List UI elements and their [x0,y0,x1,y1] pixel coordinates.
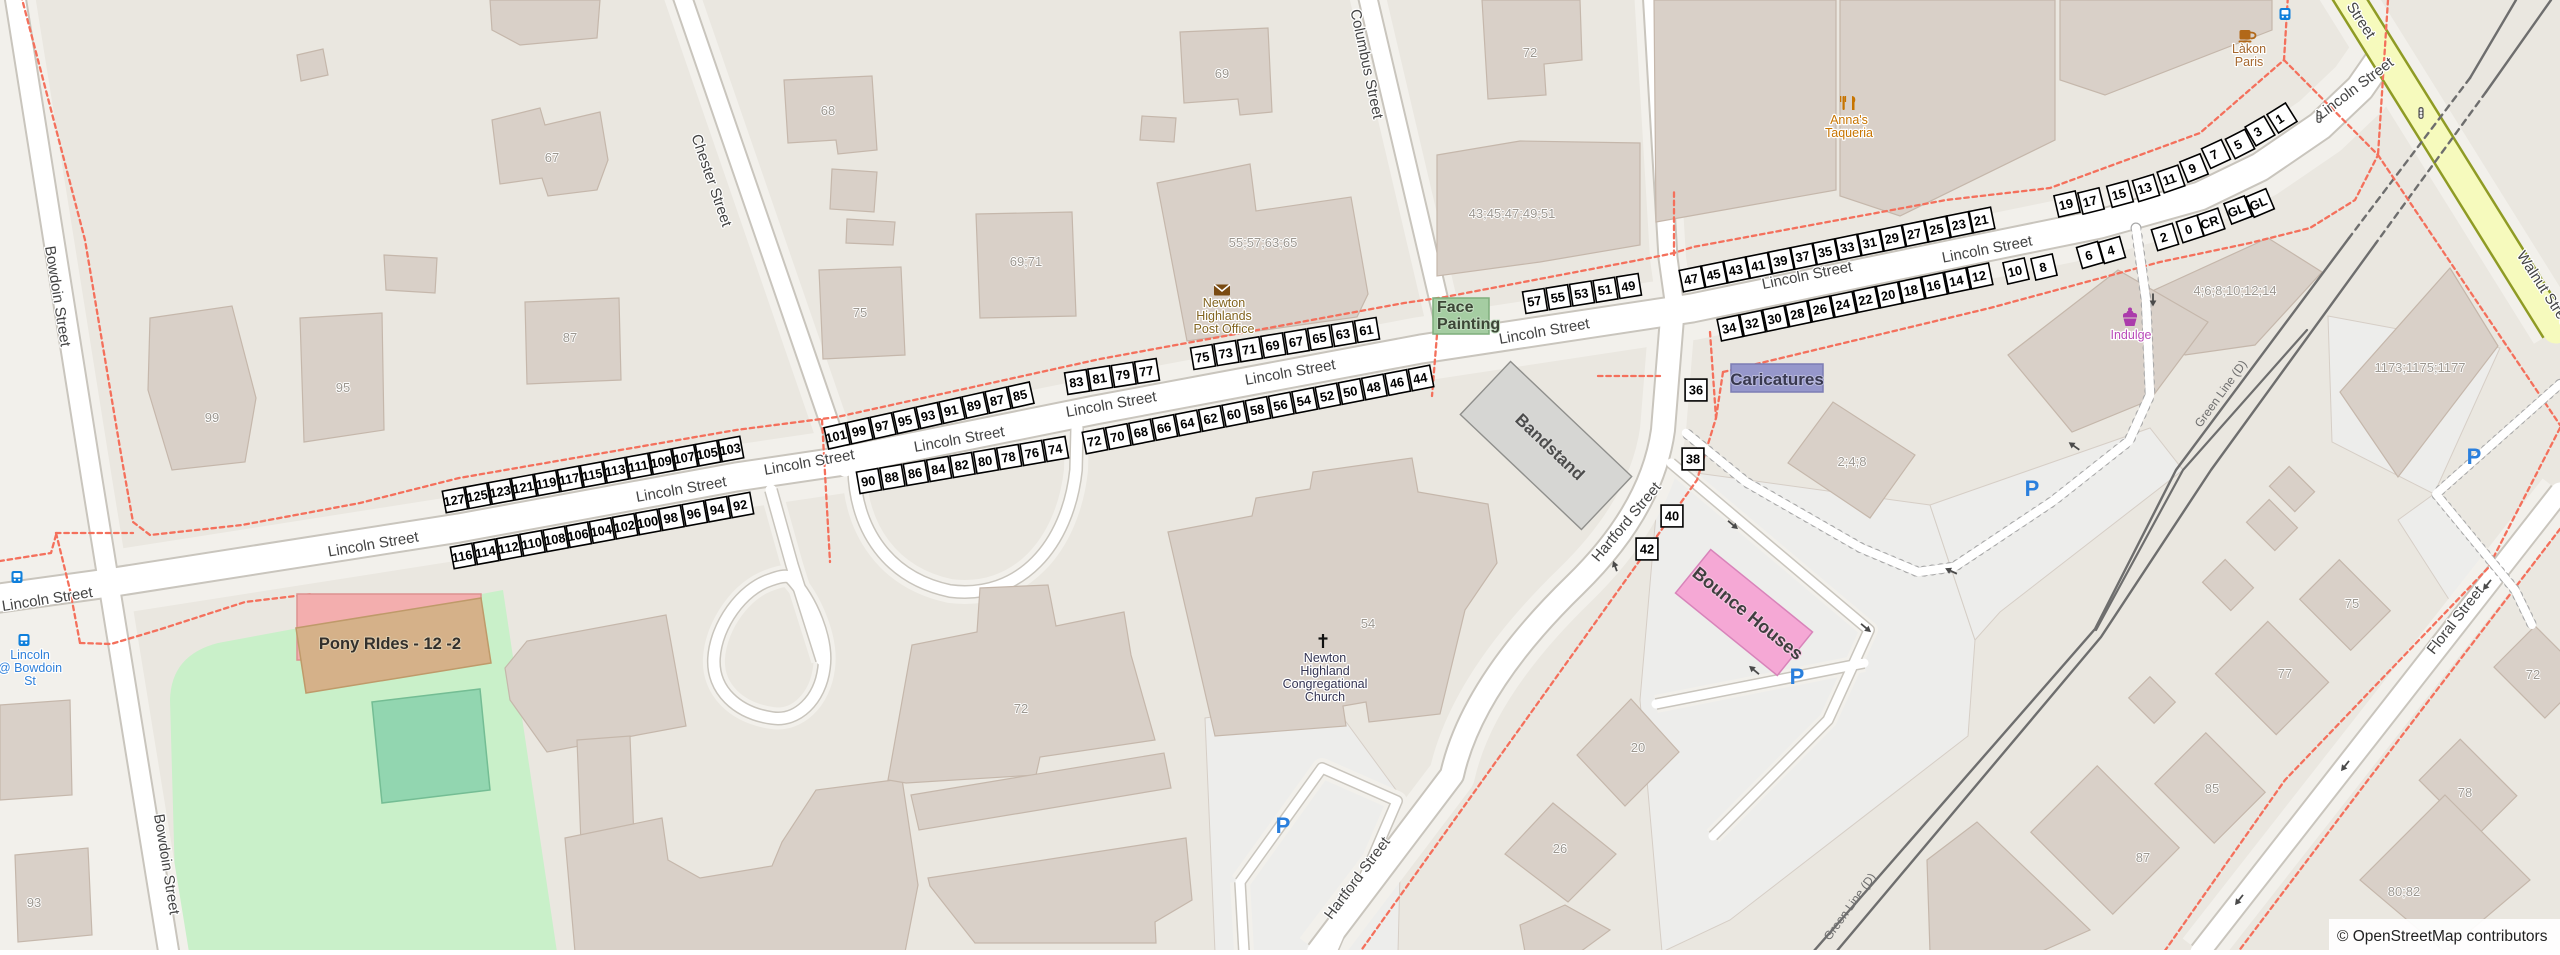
svg-text:80: 80 [977,453,994,470]
svg-text:85: 85 [2205,781,2219,796]
svg-text:Paris: Paris [2235,55,2263,69]
svg-text:2;4;8: 2;4;8 [1838,454,1867,469]
svg-text:@ Bowdoin: @ Bowdoin [0,661,62,675]
svg-text:36: 36 [1689,383,1703,398]
svg-text:Làkon: Làkon [2232,42,2266,56]
svg-text:87: 87 [563,330,577,345]
svg-text:21: 21 [1973,211,1990,229]
svg-text:77: 77 [1138,363,1154,380]
svg-text:82: 82 [953,457,970,474]
svg-text:69: 69 [1215,66,1229,81]
svg-text:33: 33 [1839,239,1856,257]
svg-text:26: 26 [1553,841,1567,856]
svg-text:92: 92 [732,497,749,514]
svg-text:93: 93 [27,895,41,910]
svg-text:35: 35 [1816,243,1833,261]
svg-text:58: 58 [1249,401,1266,418]
svg-text:69: 69 [1264,337,1280,354]
svg-text:28: 28 [1789,305,1806,323]
svg-text:87: 87 [2136,850,2150,865]
svg-text:95: 95 [336,380,350,395]
svg-text:Highlands: Highlands [1196,309,1252,323]
svg-text:27: 27 [1906,225,1923,243]
svg-text:25: 25 [1928,220,1945,238]
svg-text:72: 72 [1014,701,1028,716]
svg-text:75: 75 [2345,596,2359,611]
svg-text:72: 72 [2526,667,2540,682]
svg-text:31: 31 [1861,234,1878,252]
svg-text:43: 43 [1727,261,1744,279]
svg-text:Congregational: Congregational [1283,677,1368,691]
svg-text:22: 22 [1857,291,1874,309]
svg-text:86: 86 [907,465,924,482]
svg-text:77: 77 [2278,666,2292,681]
svg-text:47: 47 [1683,270,1700,288]
svg-text:26: 26 [1811,300,1828,318]
svg-text:41: 41 [1750,257,1767,275]
svg-text:16: 16 [1925,277,1942,295]
svg-text:37: 37 [1794,248,1811,266]
svg-text:71: 71 [1241,341,1257,358]
svg-text:83: 83 [1068,374,1084,391]
svg-text:38: 38 [1686,452,1700,467]
svg-text:Anna's: Anna's [1830,113,1868,127]
svg-text:88: 88 [883,469,900,486]
svg-text:Face: Face [1437,299,1474,316]
svg-text:P: P [2467,444,2482,469]
svg-text:45: 45 [1705,266,1722,284]
svg-text:23: 23 [1950,216,1967,234]
svg-text:62: 62 [1202,410,1219,427]
svg-text:61: 61 [1358,322,1374,339]
svg-text:Church: Church [1305,690,1345,704]
svg-text:50: 50 [1342,383,1359,400]
svg-text:99: 99 [205,410,219,425]
svg-text:72: 72 [1523,45,1537,60]
svg-text:53: 53 [1573,285,1589,302]
svg-text:40: 40 [1665,509,1679,524]
svg-text:67: 67 [545,150,559,165]
svg-text:60: 60 [1225,405,1242,422]
svg-text:52: 52 [1319,387,1336,404]
svg-text:12: 12 [1971,267,1988,285]
svg-text:P: P [1276,813,1291,838]
svg-text:P: P [2025,476,2040,501]
svg-text:Pony RIdes - 12 -2: Pony RIdes - 12 -2 [319,635,461,653]
svg-text:Newton: Newton [1203,296,1245,310]
svg-text:Highland: Highland [1300,664,1349,678]
svg-text:72: 72 [1086,432,1103,449]
svg-text:43;45;47;49;51: 43;45;47;49;51 [1469,206,1556,221]
svg-text:Painting: Painting [1437,316,1500,333]
svg-text:18: 18 [1902,282,1919,300]
svg-text:68: 68 [1132,423,1149,440]
svg-text:20: 20 [1880,286,1897,304]
svg-text:42: 42 [1640,542,1654,557]
svg-text:Indulge: Indulge [2110,328,2151,342]
svg-text:32: 32 [1743,315,1760,333]
svg-text:78: 78 [1000,449,1017,466]
svg-text:49: 49 [1620,278,1636,295]
svg-text:76: 76 [1024,445,1041,462]
svg-text:Caricatures: Caricatures [1730,370,1824,389]
svg-text:67: 67 [1288,333,1304,350]
svg-text:20: 20 [1631,740,1645,755]
svg-text:4;6;8;10;12;14: 4;6;8;10;12;14 [2193,283,2276,298]
svg-text:P: P [1790,664,1805,689]
svg-text:79: 79 [1115,366,1131,383]
svg-text:© OpenStreetMap contributors: © OpenStreetMap contributors [2337,928,2548,945]
svg-text:90: 90 [860,473,877,490]
svg-text:Newton: Newton [1304,651,1346,665]
svg-text:98: 98 [662,509,679,526]
svg-text:78: 78 [2458,785,2472,800]
svg-text:75: 75 [853,305,867,320]
svg-text:46: 46 [1388,374,1405,391]
svg-text:65: 65 [1311,329,1327,346]
svg-text:56: 56 [1272,396,1289,413]
svg-text:30: 30 [1766,310,1783,328]
svg-text:55: 55 [1550,289,1566,306]
svg-text:75: 75 [1194,349,1210,366]
svg-text:66: 66 [1156,419,1173,436]
svg-text:48: 48 [1365,378,1382,395]
svg-text:Taqueria: Taqueria [1825,126,1873,140]
svg-text:Post Office: Post Office [1194,322,1255,336]
svg-text:69;71: 69;71 [1010,254,1043,269]
svg-text:54: 54 [1361,616,1375,631]
svg-text:68: 68 [821,103,835,118]
svg-text:39: 39 [1772,252,1789,270]
svg-text:63: 63 [1335,325,1351,342]
svg-text:70: 70 [1109,428,1126,445]
svg-text:73: 73 [1217,345,1233,362]
svg-text:57: 57 [1526,293,1542,310]
svg-text:96: 96 [686,505,703,522]
svg-text:Lincoln: Lincoln [10,648,50,662]
svg-text:80;82: 80;82 [2388,884,2421,899]
svg-text:55;57;63;65: 55;57;63;65 [1229,235,1298,250]
svg-text:St: St [24,674,36,688]
svg-text:81: 81 [1091,370,1107,387]
svg-text:51: 51 [1597,281,1613,298]
svg-text:29: 29 [1883,230,1900,248]
svg-text:1173;1175;1177: 1173;1175;1177 [2374,360,2465,375]
